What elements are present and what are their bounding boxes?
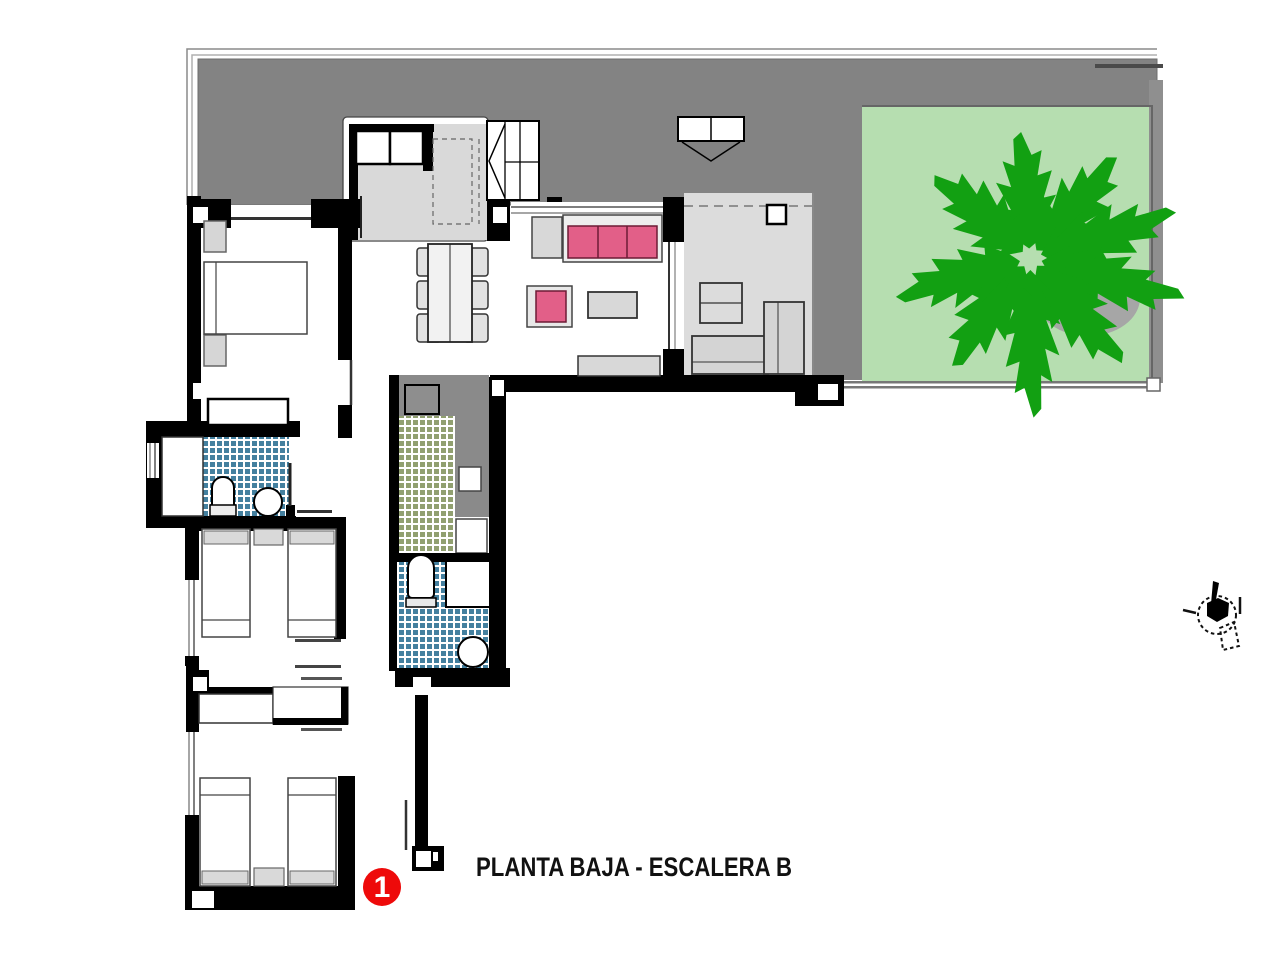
- svg-text:1: 1: [374, 871, 391, 904]
- svg-text:PLANTA BAJA - ESCALERA B: PLANTA BAJA - ESCALERA B: [476, 852, 792, 882]
